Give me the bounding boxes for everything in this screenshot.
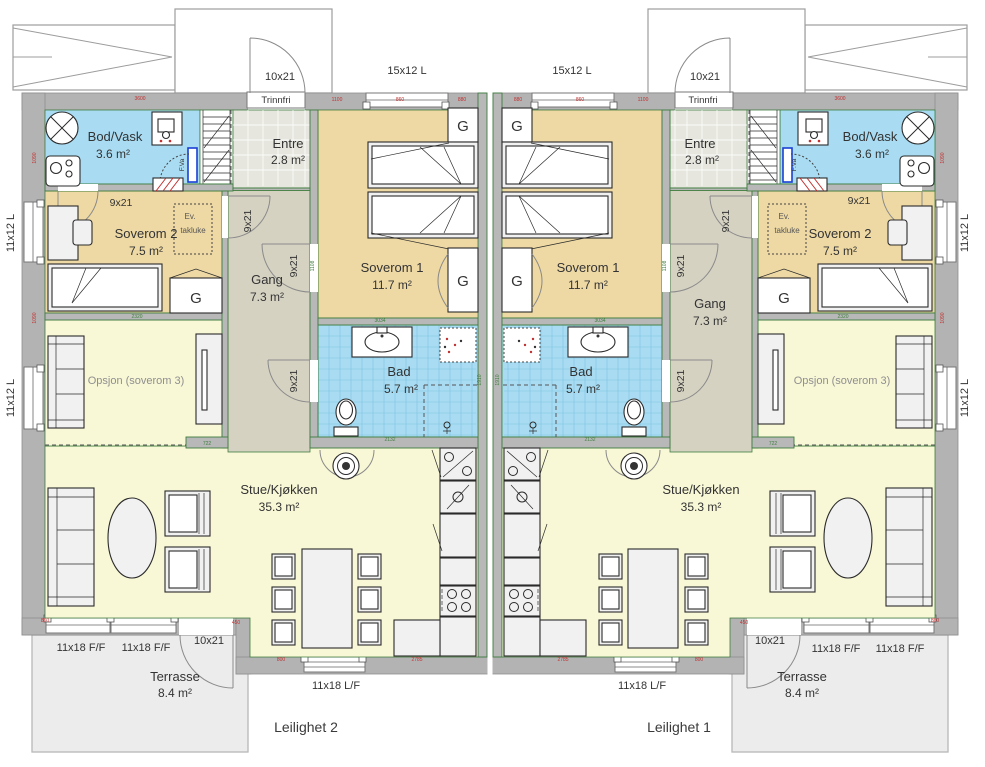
svg-text:G: G <box>190 290 202 307</box>
svg-text:450: 450 <box>232 620 241 626</box>
svg-text:9x21: 9x21 <box>848 195 871 207</box>
label-trinnfri-left: Trinnfri <box>261 95 290 106</box>
window-side-2 <box>24 367 43 429</box>
svg-text:1108: 1108 <box>662 260 668 271</box>
svg-text:3.6 m²: 3.6 m² <box>855 147 889 161</box>
svg-text:860: 860 <box>576 97 585 103</box>
floor-plan-canvas: Bod/Vask 3.6 m² Bod/Vask 3.6 m² Entre 2.… <box>0 0 985 767</box>
svg-text:2.8 m²: 2.8 m² <box>685 153 719 167</box>
svg-text:860: 860 <box>396 97 405 103</box>
svg-text:11x18 L/F: 11x18 L/F <box>618 680 666 692</box>
svg-text:1100: 1100 <box>332 97 343 103</box>
label-stue-left: Stue/Kjøkken <box>240 482 317 497</box>
svg-text:2132: 2132 <box>384 437 395 443</box>
svg-text:880: 880 <box>458 97 467 103</box>
svg-text:3034: 3034 <box>594 318 605 324</box>
svg-text:11x18 F/F: 11x18 F/F <box>812 643 861 655</box>
tv-icon <box>202 350 207 410</box>
label-trinnfri-right: Trinnfri <box>688 95 717 106</box>
label-front-door-right: 10x21 <box>690 71 720 83</box>
svg-text:35.3 m²: 35.3 m² <box>259 500 300 514</box>
svg-text:G: G <box>511 273 523 290</box>
svg-text:9x21: 9x21 <box>110 197 133 209</box>
svg-text:1090: 1090 <box>32 312 38 323</box>
label-bod-right: Bod/Vask <box>843 129 898 144</box>
tv-bench <box>196 334 222 424</box>
label-sov1-right: Soverom 1 <box>557 260 620 275</box>
svg-text:5.7 m²: 5.7 m² <box>384 382 418 396</box>
svg-text:800: 800 <box>695 657 704 663</box>
svg-text:11x18 F/F: 11x18 F/F <box>122 642 171 654</box>
window-kitchen <box>304 657 365 672</box>
entrance-porch-roof <box>175 9 332 93</box>
svg-text:F.Va: F.Va <box>791 158 798 171</box>
svg-text:5.7 m²: 5.7 m² <box>566 382 600 396</box>
svg-text:8.4 m²: 8.4 m² <box>158 686 192 700</box>
svg-text:2.8 m²: 2.8 m² <box>271 153 305 167</box>
svg-text:35.3 m²: 35.3 m² <box>681 500 722 514</box>
label-entre-left: Entre <box>272 136 303 151</box>
svg-text:3.6 m²: 3.6 m² <box>96 147 130 161</box>
kitchen-counter-1 <box>440 514 476 557</box>
window-living-2 <box>111 618 176 633</box>
svg-text:11.7 m²: 11.7 m² <box>372 278 412 292</box>
label-front-door-left: 10x21 <box>265 71 295 83</box>
terrace-door-opening <box>179 618 233 635</box>
label-sov1-left: Soverom 1 <box>361 260 424 275</box>
label-gang-left: Gang <box>251 272 283 287</box>
svg-text:8.4 m²: 8.4 m² <box>785 686 819 700</box>
label-terrasse-right: Terrasse <box>777 669 827 684</box>
svg-text:2132: 2132 <box>584 437 595 443</box>
room-gang-floor <box>228 188 310 452</box>
svg-text:1910: 1910 <box>477 374 483 385</box>
svg-text:7.3 m²: 7.3 m² <box>693 314 727 328</box>
water-distribution-cabinet <box>188 148 197 182</box>
svg-text:2785: 2785 <box>411 657 422 663</box>
svg-text:9x21: 9x21 <box>288 254 300 277</box>
svg-text:860: 860 <box>931 618 940 624</box>
svg-text:880: 880 <box>514 97 523 103</box>
label-entre-right: Entre <box>684 136 715 151</box>
svg-text:9x21: 9x21 <box>675 254 687 277</box>
svg-text:takluke: takluke <box>774 226 800 235</box>
label-opsjon-right: Opsjon (soverom 3) <box>794 375 891 387</box>
label-sov2-left: Soverom 2 <box>115 226 178 241</box>
label-window-top-right: 15x12 L <box>552 65 591 77</box>
wall-sov1-bad <box>318 318 478 325</box>
svg-text:G: G <box>778 290 790 307</box>
svg-text:1910: 1910 <box>495 374 501 385</box>
label-apartment-1: Leilighet 1 <box>647 719 711 735</box>
coffee-table <box>108 498 156 578</box>
sofa-opsjon <box>48 336 84 428</box>
svg-text:Ev.: Ev. <box>779 212 790 221</box>
label-bod-left: Bod/Vask <box>88 129 143 144</box>
kitchen-counter-2 <box>440 558 476 585</box>
svg-text:2320: 2320 <box>837 314 848 320</box>
svg-text:11x18 F/F: 11x18 F/F <box>57 642 106 654</box>
svg-text:3034: 3034 <box>374 318 385 324</box>
svg-text:7.5 m²: 7.5 m² <box>129 244 163 258</box>
svg-text:Ev.: Ev. <box>185 212 196 221</box>
svg-text:450: 450 <box>740 620 749 626</box>
label-window-top-left: 15x12 L <box>387 65 426 77</box>
svg-text:11x12 L: 11x12 L <box>5 214 17 252</box>
svg-text:11x12 L: 11x12 L <box>959 379 971 417</box>
svg-text:9x21: 9x21 <box>675 369 687 392</box>
label-bad-right: Bad <box>569 364 592 379</box>
sofa-stue <box>48 488 94 606</box>
window-side-1 <box>24 202 43 262</box>
svg-text:7.3 m²: 7.3 m² <box>250 290 284 304</box>
svg-text:722: 722 <box>203 441 212 447</box>
desk-chair <box>73 220 92 245</box>
label-opsjon-left: Opsjon (soverom 3) <box>88 375 185 387</box>
label-terrasse-left: Terrasse <box>150 669 200 684</box>
svg-text:1100: 1100 <box>638 97 649 103</box>
svg-text:10x21: 10x21 <box>755 635 785 647</box>
svg-text:11x12 L: 11x12 L <box>5 379 17 417</box>
svg-text:9x21: 9x21 <box>288 369 300 392</box>
svg-text:takluke: takluke <box>180 226 206 235</box>
washer-reserved-box <box>440 328 476 362</box>
svg-text:3600: 3600 <box>834 96 845 102</box>
svg-text:11x12 L: 11x12 L <box>959 214 971 252</box>
svg-text:2320: 2320 <box>131 314 142 320</box>
svg-text:3600: 3600 <box>134 96 145 102</box>
label-stue-right: Stue/Kjøkken <box>662 482 739 497</box>
svg-text:9x21: 9x21 <box>242 209 254 232</box>
svg-text:2785: 2785 <box>557 657 568 663</box>
entre-gang-divider <box>233 188 310 191</box>
label-gang-right: Gang <box>694 296 726 311</box>
label-sov2-right: Soverom 2 <box>809 226 872 241</box>
svg-text:11x18 F/F: 11x18 F/F <box>876 643 925 655</box>
svg-text:860: 860 <box>41 618 50 624</box>
kitchen-counter-l <box>394 620 440 656</box>
svg-text:722: 722 <box>769 441 778 447</box>
svg-text:1090: 1090 <box>32 152 38 163</box>
svg-text:11.7 m²: 11.7 m² <box>568 278 608 292</box>
kitchen-counter-3 <box>440 617 476 656</box>
svg-text:7.5 m²: 7.5 m² <box>823 244 857 258</box>
svg-text:1108: 1108 <box>310 260 316 271</box>
label-apartment-2: Leilighet 2 <box>274 719 338 735</box>
svg-text:10x21: 10x21 <box>194 635 224 647</box>
window-living-1 <box>46 618 110 633</box>
svg-text:1090: 1090 <box>940 312 946 323</box>
wall-left <box>22 93 45 635</box>
svg-text:9x21: 9x21 <box>720 209 732 232</box>
svg-text:G: G <box>511 118 523 135</box>
stove <box>440 586 476 616</box>
svg-text:11x18 L/F: 11x18 L/F <box>312 680 360 692</box>
dining-table <box>302 549 352 648</box>
svg-text:F.Va: F.Va <box>179 158 186 171</box>
svg-text:G: G <box>457 273 469 290</box>
label-bad-left: Bad <box>387 364 410 379</box>
svg-text:1090: 1090 <box>940 152 946 163</box>
floor-plan-drawing: Bod/Vask 3.6 m² Bod/Vask 3.6 m² Entre 2.… <box>0 0 985 767</box>
wardrobe-label: G <box>457 118 469 135</box>
svg-text:800: 800 <box>277 657 286 663</box>
